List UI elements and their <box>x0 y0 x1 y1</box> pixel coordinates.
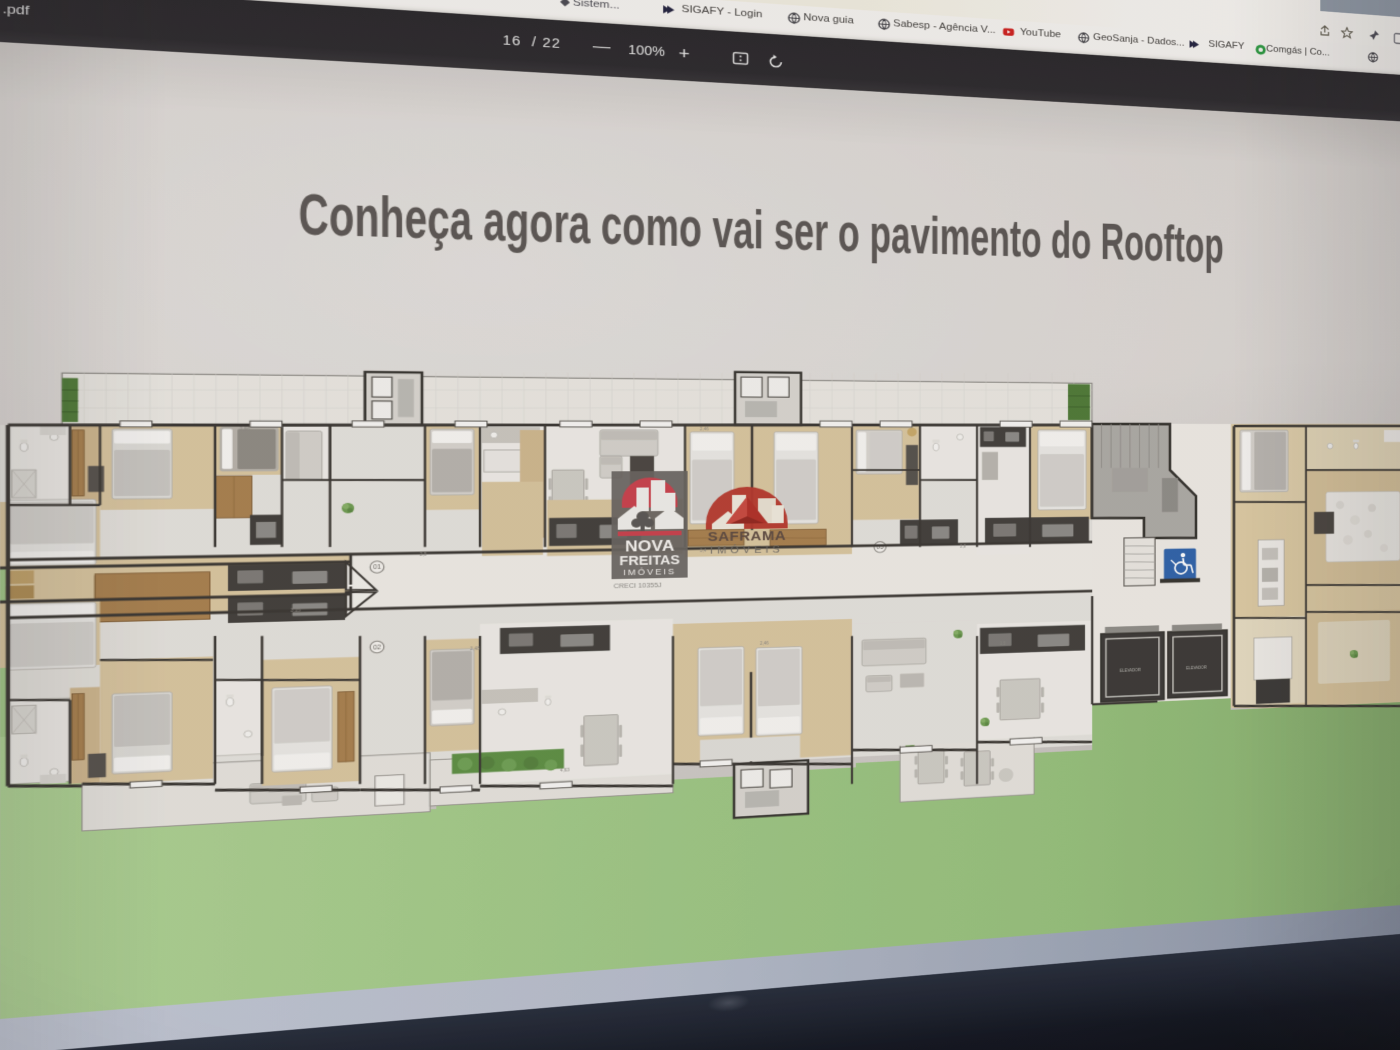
svg-text:2,9: 2,9 <box>420 552 427 557</box>
svg-text:IMÓVEIS: IMÓVEIS <box>710 543 784 556</box>
svg-text:02: 02 <box>373 643 381 651</box>
svg-text:2,46: 2,46 <box>760 641 769 646</box>
svg-text:CRECI 10355J: CRECI 10355J <box>614 582 662 590</box>
svg-text:NOVA: NOVA <box>625 538 674 556</box>
svg-text:2,48: 2,48 <box>470 647 480 652</box>
svg-text:SAFRAMA: SAFRAMA <box>708 528 786 544</box>
svg-text:3,15: 3,15 <box>290 608 300 613</box>
svg-text:ELEVADOR: ELEVADOR <box>1120 668 1141 673</box>
svg-text:2,46: 2,46 <box>700 427 709 432</box>
svg-text:FREITAS: FREITAS <box>619 554 679 569</box>
svg-text:2,8: 2,8 <box>960 544 966 549</box>
svg-text:2,66: 2,66 <box>240 427 250 432</box>
svg-text:IMÓVEIS: IMÓVEIS <box>623 566 676 577</box>
svg-text:ELEVADOR: ELEVADOR <box>1186 666 1207 671</box>
svg-text:4,63: 4,63 <box>560 768 569 773</box>
svg-text:1,5: 1,5 <box>1000 642 1006 647</box>
svg-text:01: 01 <box>373 563 381 571</box>
